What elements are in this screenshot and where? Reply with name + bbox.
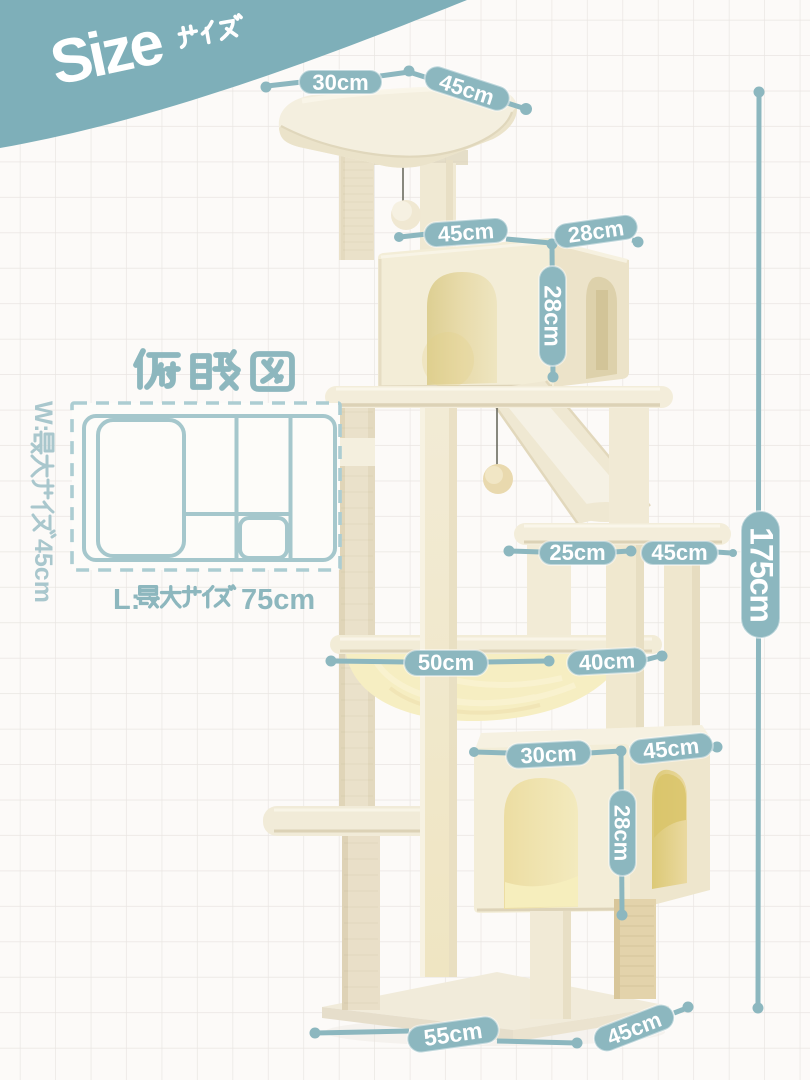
svg-text:45cm: 45cm: [29, 539, 57, 603]
svg-text:30cm: 30cm: [312, 70, 368, 95]
svg-text:175cm: 175cm: [744, 527, 780, 622]
svg-text:40cm: 40cm: [578, 648, 636, 676]
svg-text:L:: L:: [113, 584, 140, 616]
svg-text:45cm: 45cm: [651, 540, 707, 565]
svg-text:75cm: 75cm: [241, 584, 315, 616]
svg-text:W:: W:: [29, 401, 57, 432]
svg-text:25cm: 25cm: [549, 540, 605, 565]
svg-text:50cm: 50cm: [418, 650, 474, 675]
svg-text:28cm: 28cm: [539, 285, 566, 346]
svg-text:45cm: 45cm: [437, 218, 495, 247]
svg-text:30cm: 30cm: [520, 741, 578, 769]
svg-text:28cm: 28cm: [610, 805, 635, 861]
